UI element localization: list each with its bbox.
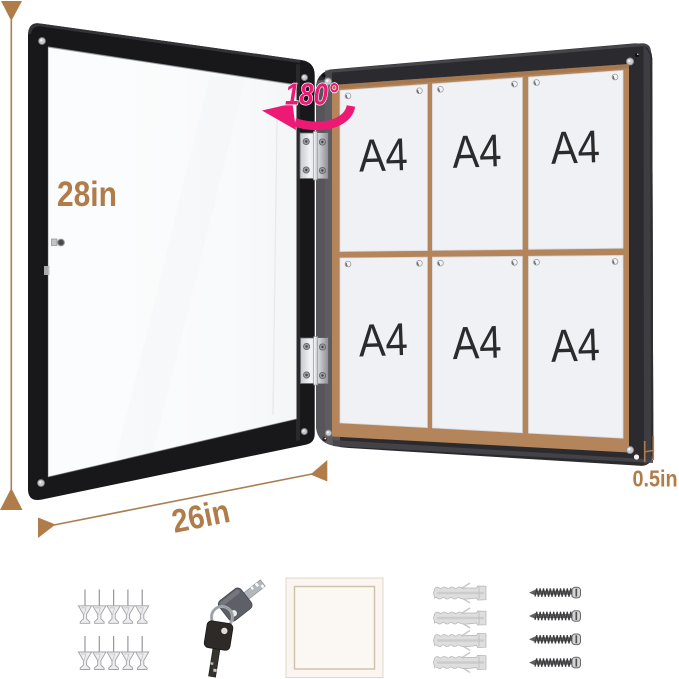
svg-text:A4: A4 — [451, 315, 502, 369]
svg-text:A4: A4 — [550, 120, 601, 174]
svg-text:A4: A4 — [451, 124, 502, 178]
svg-text:180°: 180° — [285, 77, 339, 112]
svg-text:A4: A4 — [358, 128, 409, 182]
svg-text:A4: A4 — [358, 313, 409, 367]
svg-text:A4: A4 — [550, 318, 601, 372]
svg-text:26in: 26in — [169, 492, 233, 540]
svg-text:28in: 28in — [57, 175, 117, 214]
svg-text:0.5in: 0.5in — [633, 466, 678, 492]
